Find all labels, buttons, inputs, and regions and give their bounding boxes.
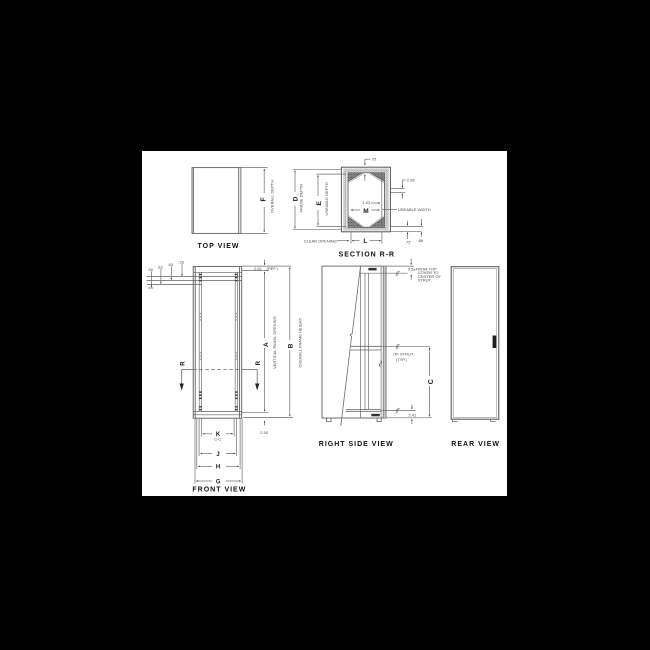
svg-text:USEABLE WIDTH: USEABLE WIDTH: [398, 207, 431, 212]
svg-text:.63: .63: [157, 264, 163, 269]
svg-text:B: B: [288, 343, 295, 348]
svg-text:C: C: [428, 379, 435, 384]
svg-text:G: G: [216, 479, 221, 485]
svg-text:2.08: 2.08: [407, 178, 416, 183]
svg-text:M: M: [363, 208, 368, 215]
svg-text:2.41: 2.41: [408, 412, 417, 417]
svg-text:.63: .63: [168, 262, 174, 267]
svg-text:E: E: [316, 201, 323, 206]
svg-text:J: J: [216, 452, 219, 458]
svg-text:H: H: [216, 465, 220, 471]
svg-text:L: L: [363, 238, 367, 245]
svg-text:REAR VIEW: REAR VIEW: [451, 441, 500, 448]
svg-text:CLEAR OPENING: CLEAR OPENING: [304, 239, 337, 244]
svg-text:R: R: [256, 360, 262, 365]
svg-text:C-C: C-C: [214, 437, 221, 442]
svg-text:.75: .75: [405, 239, 411, 244]
svg-text:.50: .50: [147, 267, 153, 272]
svg-text:A: A: [263, 342, 270, 347]
svg-text:.28: .28: [178, 260, 184, 265]
svg-text:(REF.): (REF.): [267, 266, 279, 271]
svg-text:F: F: [261, 197, 268, 202]
svg-text:OF STRUT: OF STRUT: [393, 351, 414, 356]
svg-text:2.50: 2.50: [260, 430, 269, 435]
svg-text:1.03: 1.03: [362, 200, 371, 205]
svg-text:USEABLE DEPTH: USEABLE DEPTH: [324, 182, 329, 215]
svg-text:R: R: [181, 361, 187, 366]
svg-text:FRAME DEPTH: FRAME DEPTH: [299, 184, 304, 213]
svg-text:RIGHT SIDE VIEW: RIGHT SIDE VIEW: [319, 441, 394, 448]
svg-text:.75: .75: [371, 156, 377, 161]
svg-text:.88: .88: [418, 238, 424, 243]
svg-text:OVERALL FRAME HEIGHT: OVERALL FRAME HEIGHT: [297, 317, 302, 367]
svg-text:2.62: 2.62: [254, 266, 263, 271]
svg-text:STRUT.: STRUT.: [418, 278, 432, 283]
svg-text:VERTICAL PANEL OPENING: VERTICAL PANEL OPENING: [272, 316, 277, 369]
svg-text:SECTION R-R: SECTION R-R: [339, 252, 396, 259]
svg-text:OVERALL DEPTH: OVERALL DEPTH: [270, 180, 275, 213]
svg-text:FRONT VIEW: FRONT VIEW: [192, 487, 246, 494]
svg-text:(TYP.): (TYP.): [396, 357, 408, 362]
svg-text:TOP VIEW: TOP VIEW: [198, 243, 240, 250]
